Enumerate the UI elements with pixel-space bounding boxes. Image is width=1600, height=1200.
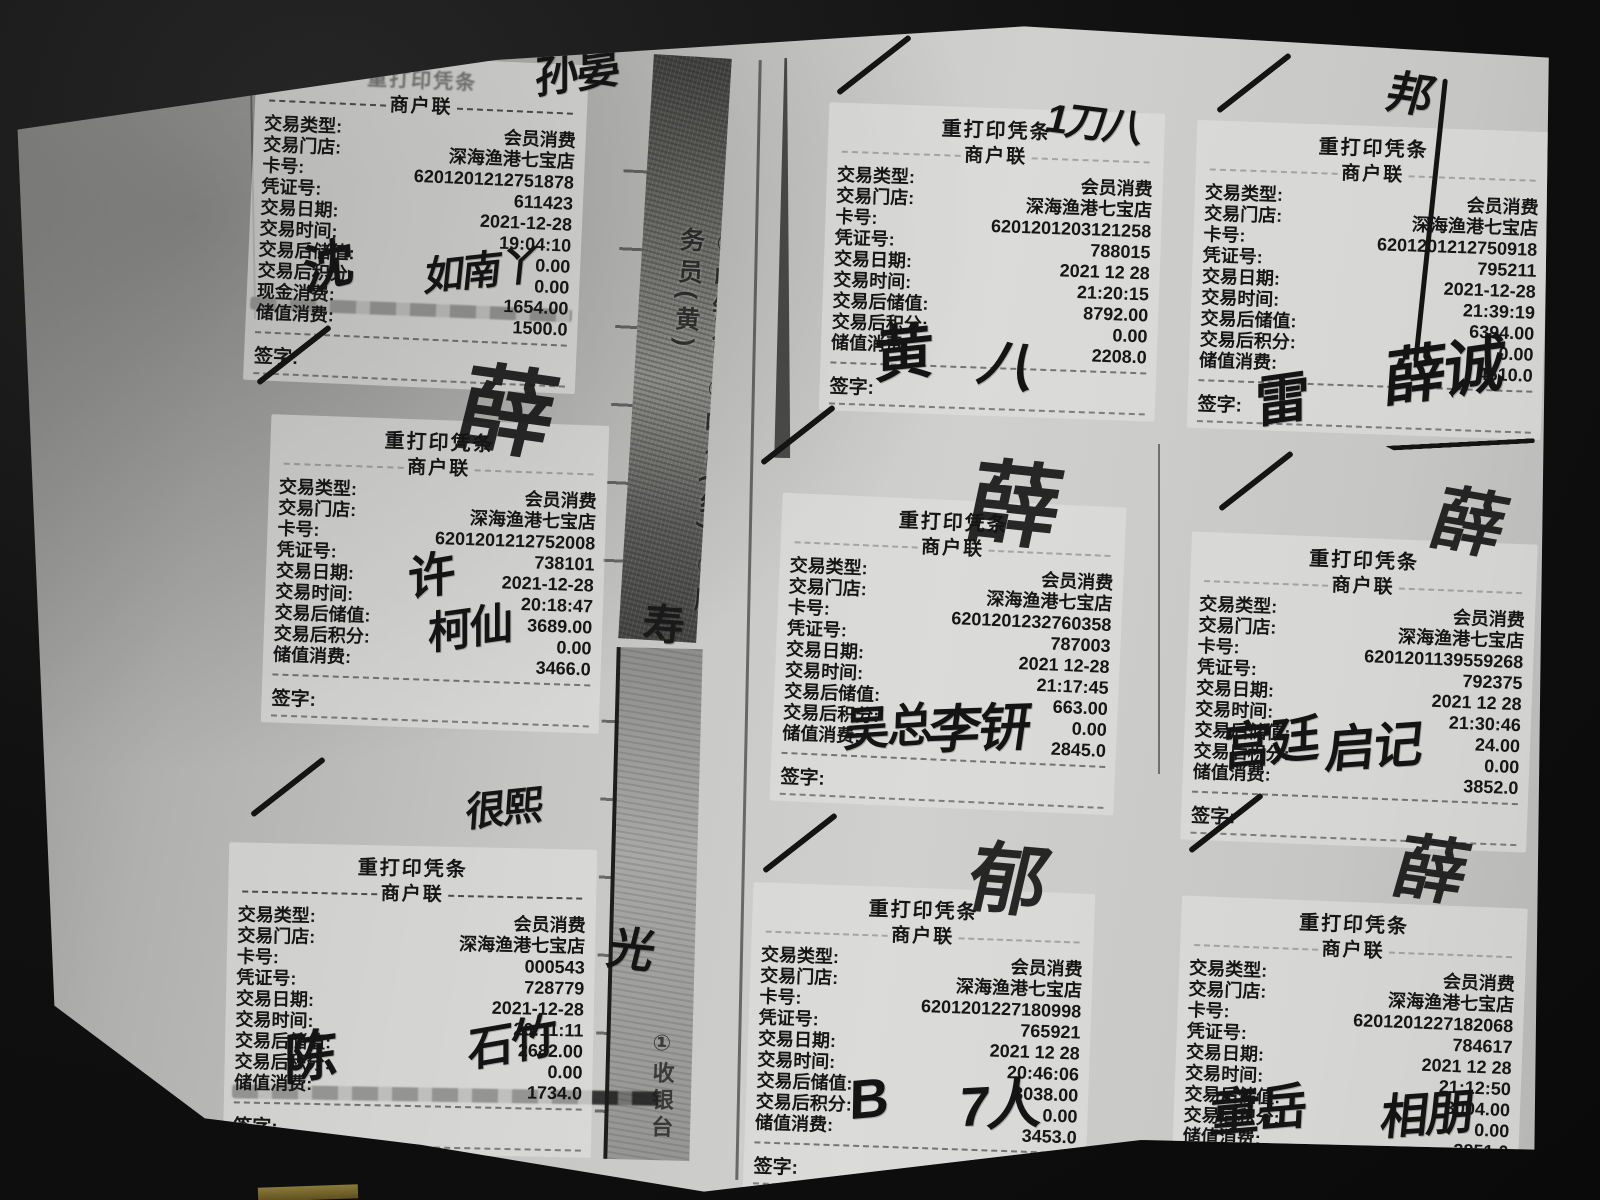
signature-ink: 童岳 <box>1208 1066 1307 1147</box>
field-label: 储值消费: <box>273 644 352 668</box>
dashed-divider <box>1204 579 1327 586</box>
dashed-divider <box>1389 951 1512 958</box>
field-label: 交易类型: <box>1205 182 1284 206</box>
signature-label: 签字: <box>1197 394 1242 417</box>
cashier-routing-strip: ①收银台 ②吧台(红) ③服务员(黄) <box>618 54 732 643</box>
field-label: 交易类型: <box>761 944 840 968</box>
field-value: 2021-12-28 <box>480 211 573 236</box>
receipt-subtitle: 商户联 <box>389 90 453 120</box>
receipt-fields: 交易类型:会员消费交易门店:深海渔港七宝店卡号:6201201212751878… <box>255 113 576 336</box>
field-label: 交易类型: <box>1189 958 1268 982</box>
dashed-divider <box>753 1182 1075 1195</box>
field-value: 787003 <box>1050 633 1111 657</box>
signature-ink: 孙晏 <box>535 30 618 106</box>
field-label: 交易日期: <box>834 248 913 272</box>
signature-ink: 黄 <box>874 302 932 396</box>
field-value: 21:17:45 <box>1036 675 1109 699</box>
field-label: 交易日期: <box>758 1028 837 1052</box>
pen-stroke <box>762 812 838 873</box>
pen-stroke <box>250 756 326 817</box>
signature-ink: 陈 <box>284 1009 335 1096</box>
signature-ink: B <box>849 1065 888 1133</box>
field-label: 凭证号: <box>236 967 296 989</box>
signature-ink: 启记 <box>1322 703 1425 782</box>
dashed-divider <box>795 541 917 548</box>
field-label: 交易门店: <box>836 186 915 210</box>
field-value: 3852.0 <box>1463 776 1519 799</box>
field-label: 卡号: <box>835 207 878 229</box>
receipt-subtitle: 商户联 <box>1341 158 1405 187</box>
field-value: 2845.0 <box>1050 739 1106 762</box>
field-value: 深海渔港七宝店 <box>459 934 585 958</box>
dashed-divider <box>1210 168 1337 174</box>
field-value: 728779 <box>524 977 585 999</box>
dashed-divider <box>766 930 887 936</box>
signature-ink: 雷 <box>1255 351 1307 439</box>
receipt-slip: 重打印凭条 商户联 交易类型:会员消费交易门店:深海渔港七宝店卡号:620120… <box>769 493 1126 816</box>
receipt-subtitle: 商户联 <box>1331 570 1395 599</box>
field-value: 会员消费 <box>1466 195 1539 218</box>
field-value: 795211 <box>1477 259 1537 282</box>
field-value: 会员消费 <box>524 489 597 512</box>
signature-ink: 邦 <box>1380 56 1442 126</box>
field-label: 卡号: <box>1203 224 1246 246</box>
pen-stroke <box>760 404 836 465</box>
signature-ink: 寿 <box>641 590 685 654</box>
field-label: 卡号: <box>1197 636 1240 659</box>
pen-stroke <box>1216 52 1292 113</box>
field-value: 3689.00 <box>527 615 593 638</box>
field-value: 3466.0 <box>535 658 591 681</box>
field-label: 交易日期: <box>276 560 355 584</box>
signature-ink: 柯仙 <box>428 586 511 662</box>
field-label: 交易类型: <box>279 477 358 501</box>
signature-ink: 吴总 <box>843 688 933 760</box>
field-label: 交易类型: <box>1199 594 1278 618</box>
field-value: 2208.0 <box>1091 346 1147 369</box>
field-label: 卡号: <box>1187 1000 1230 1023</box>
signature-ink: 7人 <box>956 1058 1045 1143</box>
pen-stroke <box>1385 438 1535 451</box>
field-label: 交易时间: <box>833 269 912 293</box>
receipt-slip: 重打印凭条 商户联 交易类型:会员消费交易门店:深海渔港七宝店卡号:620120… <box>1180 531 1538 852</box>
receipt-subtitle: 商户联 <box>891 920 955 949</box>
field-value: 21:30:46 <box>1448 712 1521 736</box>
receipt-slip: 重打印凭条 商户联 交易类型:会员消费交易门店:深海渔港七宝店卡号:620120… <box>743 882 1096 1200</box>
field-value: 3851.0 <box>1453 1140 1509 1163</box>
signature-label: 签字: <box>753 1156 798 1179</box>
field-label: 交易时间: <box>757 1049 836 1073</box>
dashed-divider <box>1408 175 1535 181</box>
field-value: 会员消费 <box>513 914 585 937</box>
signature-ink: 宫廷 <box>1221 698 1319 781</box>
field-value: 8792.00 <box>1083 303 1149 326</box>
field-value: 20:18:47 <box>521 594 594 618</box>
field-value: 1734.0 <box>527 1082 582 1104</box>
dashed-divider <box>1194 943 1317 950</box>
dashed-divider <box>842 150 960 156</box>
field-label: 交易日期: <box>1202 266 1281 290</box>
field-value: 24.00 <box>1475 734 1521 757</box>
signature-ink: 相朋 <box>1378 1072 1477 1149</box>
field-value: 765921 <box>1020 1021 1081 1044</box>
dashed-divider <box>448 894 583 899</box>
signature-ink: 薛诚 <box>1382 311 1507 419</box>
field-label: 凭证号: <box>1202 245 1263 268</box>
field-label: 凭证号: <box>787 618 848 642</box>
field-value: 0.00 <box>534 276 570 299</box>
dashed-divider <box>1031 157 1149 163</box>
field-label: 凭证号: <box>1196 657 1257 680</box>
field-label: 凭证号: <box>1186 1021 1247 1044</box>
field-label: 卡号: <box>759 986 802 1008</box>
paper-fold-line <box>1158 444 1160 774</box>
table-edge-object <box>258 1184 358 1200</box>
field-label: 卡号: <box>237 946 279 968</box>
receipt-subtitle: 商户联 <box>964 140 1028 169</box>
pen-stroke <box>836 34 912 95</box>
field-value: 0.00 <box>1042 1105 1078 1127</box>
field-value: 2021-12-28 <box>1443 279 1536 303</box>
field-label: 交易门店: <box>1198 615 1277 639</box>
field-label: 交易时间: <box>275 581 354 605</box>
field-label: 储值消费: <box>755 1112 834 1136</box>
paper-shadow-wedge <box>774 58 793 458</box>
field-label: 交易门店: <box>237 925 315 948</box>
field-value: 0.00 <box>1484 756 1520 778</box>
signature-ink: 1刀八 <box>1040 86 1151 154</box>
signature-label: 签字: <box>780 767 825 790</box>
field-value: 663.00 <box>1052 697 1108 720</box>
field-label: 凭证号: <box>276 539 337 562</box>
field-label: 交易日期: <box>1196 678 1275 702</box>
cashier-routing-strip: ①收银台 <box>603 647 702 1161</box>
field-label: 交易类型: <box>837 165 916 189</box>
field-label: 凭证号: <box>261 176 322 200</box>
signature-ink: 很熙 <box>464 772 544 839</box>
strip-vertical-text: ①收银台 <box>644 1031 679 1143</box>
field-value: 0.00 <box>1112 325 1148 347</box>
field-value: 会员消费 <box>1453 608 1526 632</box>
field-label: 交易日期: <box>236 988 314 1011</box>
dashed-divider <box>242 890 377 895</box>
dashed-divider <box>958 937 1079 943</box>
field-value: 0.00 <box>1474 1120 1510 1142</box>
field-label: 交易日期: <box>1186 1042 1265 1066</box>
field-label: 交易时间: <box>1201 287 1280 311</box>
signature-ink: 李钘 <box>924 685 1035 764</box>
signature-label: 签字: <box>829 376 874 399</box>
receipt-subtitle: 商户联 <box>1321 934 1385 963</box>
field-value: 792375 <box>1462 671 1523 694</box>
receipt-subtitle: 商户联 <box>380 878 444 906</box>
field-value: 2021 12 28 <box>1059 260 1150 284</box>
field-value: 784617 <box>1452 1035 1513 1058</box>
field-value: 788015 <box>1090 240 1151 263</box>
field-value: 611423 <box>513 191 573 215</box>
field-value: 2021 12 28 <box>1431 691 1522 715</box>
field-value: 1654.00 <box>503 296 569 320</box>
field-value: 21:20:15 <box>1077 282 1150 306</box>
field-value: 0.00 <box>556 637 592 659</box>
field-value: 0.00 <box>1071 718 1107 741</box>
field-label: 储值消费: <box>255 302 334 326</box>
field-value: 会员消费 <box>1443 972 1516 996</box>
field-label: 交易门店: <box>1188 979 1267 1003</box>
field-value: 2021-12-28 <box>501 572 594 596</box>
field-value: 0.00 <box>535 255 571 278</box>
field-label: 凭证号: <box>834 228 895 251</box>
field-value: 2021 12-28 <box>1018 653 1110 678</box>
field-label: 卡号: <box>277 518 320 540</box>
field-label: 交易门店: <box>760 965 839 989</box>
dashed-divider <box>1180 1196 1506 1200</box>
field-value: 738101 <box>534 552 595 575</box>
dashed-divider <box>269 99 385 106</box>
photo-background: ①收银台 ②吧台(红) ③服务员(黄) ①收银台 重打印凭条 商户联 交易类型:… <box>0 0 1600 1200</box>
field-label: 交易门店: <box>1204 203 1283 227</box>
signature-label: 签字: <box>1181 1170 1226 1193</box>
signature-ink: 沈 <box>300 218 354 306</box>
dashed-divider <box>1399 587 1522 594</box>
field-value: 000543 <box>524 956 585 978</box>
field-value: 会员消费 <box>1080 177 1153 200</box>
field-label: 交易类型: <box>238 904 316 927</box>
paper-sheet: ①收银台 ②吧台(红) ③服务员(黄) ①收银台 重打印凭条 商户联 交易类型:… <box>0 0 1600 1200</box>
dashed-divider <box>456 107 572 114</box>
pen-stroke <box>1218 450 1294 511</box>
strip-vertical-text: ①收银台 ②吧台(红) ③服务员(黄) <box>648 226 732 643</box>
field-label: 卡号: <box>787 597 830 620</box>
signature-label: 签字: <box>233 1116 278 1138</box>
field-label: 卡号: <box>262 155 305 178</box>
field-label: 凭证号: <box>758 1007 819 1030</box>
field-value: 会员消费 <box>1010 957 1083 980</box>
signature-label: 签字: <box>271 688 316 711</box>
field-label: 交易门店: <box>278 497 357 521</box>
dashed-divider <box>284 462 403 468</box>
dashed-divider <box>1182 1155 1508 1170</box>
receipt-slip: 重打印凭条 商户联 交易类型:会员消费交易门店:深海渔港七宝店卡号:620120… <box>1170 895 1528 1200</box>
